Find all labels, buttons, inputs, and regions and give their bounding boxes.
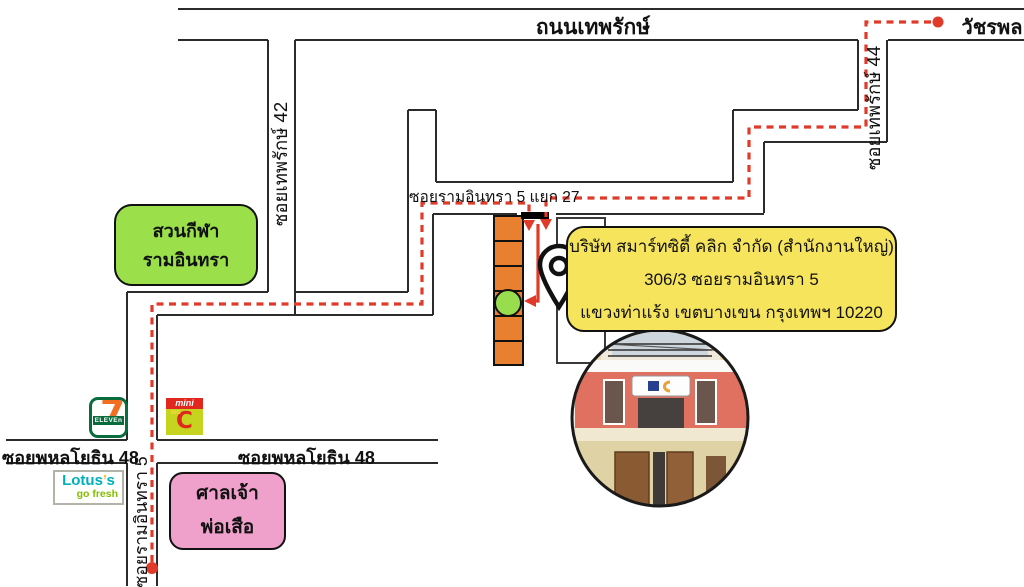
road-label-thanon-theprak: ถนนเทพรักษ์ (518, 11, 668, 44)
seven-eleven-wordmark: ELEVEn (93, 416, 124, 425)
route-final-approach (532, 224, 538, 301)
directions-map: ถนนเทพรักษ์ วัชรพล ซอยเทพรักษ์ 42 ซอยเทพ… (0, 0, 1024, 587)
lotus-wordmark-part1: Lotus (62, 472, 103, 489)
address-line1: บริษัท สมาร์ทซิตี้ คลิก จำกัด (สำนักงานใ… (569, 230, 894, 263)
route-arrow-left (523, 220, 535, 231)
mini-big-c-logo: mini BIG C (166, 398, 203, 435)
mini-big-c-big-label: BIG (171, 410, 181, 416)
lotus-logo: Lotus’s go fresh (53, 470, 124, 505)
road-label-phahonyothin-48-left: ซอยพหลโยธิน 48 (2, 443, 126, 472)
lotus-tagline: go fresh (55, 488, 122, 500)
route-arrow-right (540, 219, 552, 230)
address-line2: 306/3 ซอยรามอินทรา 5 (644, 263, 819, 296)
route-arrow-destination (524, 295, 536, 307)
lotus-wordmark-part2: s (107, 472, 115, 489)
address-card: บริษัท สมาร์ทซิตี้ คลิก จำกัด (สำนักงานใ… (566, 226, 897, 332)
shrine-label-line1: ศาลเจ้า (196, 477, 259, 511)
destination-unit-marker (495, 290, 521, 316)
address-line3: แขวงท่าแร้ง เขตบางเขน กรุงเทพฯ 10220 (580, 296, 883, 329)
mini-big-c-body: BIG C (166, 409, 203, 435)
route-start-dot-watcharaphon (933, 17, 944, 28)
road-label-phahonyothin-48-right: ซอยพหลโยธิน 48 (238, 443, 362, 472)
sports-park-label: สวนกีฬารามอินทรา (116, 216, 256, 274)
road-label-soi-theprak-44: ซอยเทพรักษ์ 44 (862, 42, 886, 174)
shrine-box: ศาลเจ้า พ่อเสือ (169, 472, 286, 550)
lotus-wordmark: Lotus’s (55, 473, 122, 488)
shrine-label-line2: พ่อเสือ (201, 511, 254, 545)
road-label-soi-ram-inthra-5-yaek-27: ซอยรามอินทรา 5 แยก 27 (409, 184, 580, 209)
road-label-soi-ram-inthra-5: ซอยรามอินทรา 5 (130, 459, 152, 585)
road-label-watcharaphon: วัชรพล (960, 11, 1024, 43)
road-label-soi-theprak-42: ซอยเทพรักษ์ 42 (269, 99, 293, 229)
seven-eleven-logo: 7 ELEVEn (89, 397, 128, 438)
sports-park-box: สวนกีฬารามอินทรา (114, 204, 258, 286)
